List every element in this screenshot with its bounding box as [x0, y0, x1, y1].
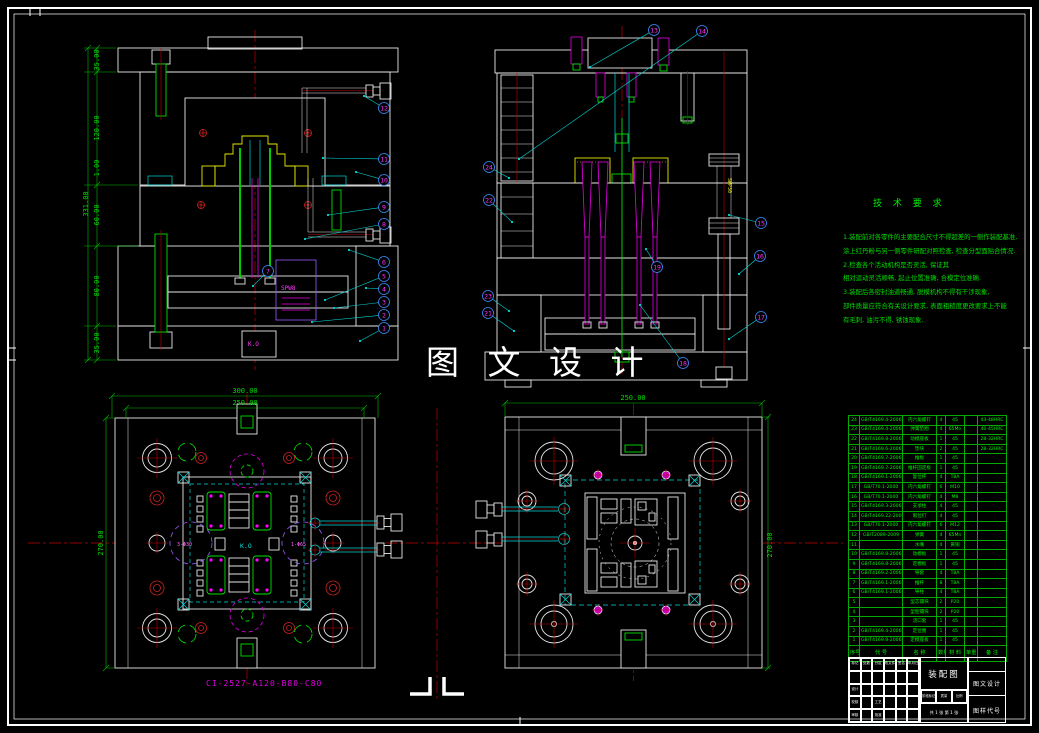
title-block-cell: 设计 [849, 684, 861, 697]
bom-row: 19GB/T4169.7-2006推杆固定板145 [849, 463, 1007, 473]
bom-cell: 4 [937, 588, 946, 598]
balloon-1: 1 [359, 323, 390, 343]
bom-cell: T8A [946, 588, 965, 598]
ko-label: K.O [248, 341, 259, 348]
bom-cell: GB/T4169.4-2006 [860, 425, 903, 435]
title-block-cell: 阶段标记 [921, 690, 936, 703]
bom-cell: 17 [849, 483, 860, 493]
view-plan-core-plate [476, 403, 762, 681]
bom-cell [978, 463, 1007, 473]
bom-cell: 定模座板 [903, 636, 937, 646]
svg-text:9: 9 [382, 203, 386, 211]
title-block-cell [861, 671, 873, 684]
title-block-cell [907, 671, 919, 684]
bom-cell: 动模板 [903, 550, 937, 560]
title-block-cell [896, 684, 908, 697]
bom-cell: 1 [937, 435, 946, 445]
dimension-label: 35.00 [93, 332, 101, 353]
bom-cell [978, 473, 1007, 483]
bom-cell: 导柱 [903, 588, 937, 598]
bom-cell: GB/T70.1-2000 [860, 483, 903, 493]
bom-cell: 垫块 [903, 444, 937, 454]
dia-label-right: 1-Φ65 [291, 542, 306, 548]
bom-cell: 45 [946, 550, 965, 560]
svg-text:13: 13 [650, 26, 658, 34]
code-label: 图样代号 [969, 696, 1005, 724]
title-block-cell: 批准 [872, 709, 884, 722]
bom-cell [965, 483, 978, 493]
bom-cell: 16 [849, 492, 860, 502]
bom-row: 9GB/T4169.8-2006定模板145 [849, 559, 1007, 569]
title-block-cell: 年月日 [907, 658, 919, 671]
bom-cell: 浇口套 [903, 617, 937, 627]
title-block-revision-grid: 标记处数分区更改文件号签名年月日设计校核工艺审核批准 [848, 657, 920, 723]
bom-cell [860, 607, 903, 617]
title-block-cell [884, 671, 896, 684]
dimension-label: 331.00 [82, 191, 90, 216]
tech-requirement-line: 2.检查各个活动机构是否灵活, 保证其 [843, 259, 1039, 273]
bom-cell: 4 [937, 502, 946, 512]
bom-cell: 45 [946, 636, 965, 646]
sheet-count: 共 1 张 第 1 张 [921, 704, 967, 722]
bom-cell [965, 607, 978, 617]
bom-cell: 45 [946, 435, 965, 445]
bom-cell: GB/T4169.1-2006 [860, 473, 903, 483]
title-block-cell [849, 671, 861, 684]
bom-cell: 推杆 [903, 579, 937, 589]
bom-cell [965, 550, 978, 560]
bom-row: 15GB/T4169.3-2006支承柱445 [849, 502, 1007, 512]
bom-cell: 黄铜 [946, 540, 965, 550]
svg-text:5: 5 [382, 272, 386, 280]
bom-cell: 2 [849, 627, 860, 637]
bom-cell: GB/T4169.8-2006 [860, 559, 903, 569]
org-name: 图文设计 [969, 672, 1005, 696]
bom-cell [978, 492, 1007, 502]
svg-text:11: 11 [380, 155, 388, 163]
svg-text:22: 22 [485, 196, 493, 204]
title-block-cell [896, 671, 908, 684]
bom-cell: GB/T4169.7-2006 [860, 463, 903, 473]
title-block-cell: 比例 [952, 690, 967, 703]
svg-text:4: 4 [382, 285, 386, 293]
bom-cell [978, 579, 1007, 589]
dimension-label: 1.00 [93, 160, 101, 177]
title-block-cell [896, 696, 908, 709]
ko-center-label: K.O [240, 542, 252, 550]
bom-cell: M12 [946, 521, 965, 531]
bom-cell [965, 579, 978, 589]
title-block-cell [861, 684, 873, 697]
bom-cell: 45 [946, 627, 965, 637]
title-block-cell: 处数 [861, 658, 873, 671]
dimension-label: 120.00 [93, 115, 101, 140]
title-block-cell [861, 696, 873, 709]
view-section-moving-half: SWP30 [485, 26, 747, 387]
dimension-label: 60.00 [93, 204, 101, 225]
bom-cell: 4 [937, 492, 946, 502]
dimension-label: 250.00 [232, 399, 257, 407]
bom-row: 8GB/T4169.2-2006导套4T8A [849, 569, 1007, 579]
title-block-cell [884, 696, 896, 709]
bom-cell: GB/T4169.7-2006 [860, 454, 903, 464]
title-block-cell: 更改文件号 [884, 658, 896, 671]
return-pin-spring: SWP30 [709, 52, 739, 379]
bom-cell: GB/T4169.4-2006 [860, 627, 903, 637]
bom-cell: 4 [937, 511, 946, 521]
bom-cell: GB/T70.1-2000 [860, 492, 903, 502]
bom-cell [965, 588, 978, 598]
title-block-cell [861, 709, 873, 722]
bom-cell: 支承柱 [903, 502, 937, 512]
bom-cell: 45 [946, 454, 965, 464]
svg-text:1: 1 [382, 324, 386, 332]
bom-cell [978, 588, 1007, 598]
bom-cell: 6 [937, 483, 946, 493]
bom-cell [978, 483, 1007, 493]
bom-row: 2GB/T4169.4-2006定位圈145 [849, 627, 1007, 637]
bom-cell: 45 [946, 444, 965, 454]
bom-table: 24GB/T4169.4-2006内六角螺钉44543-48HRC23GB/T4… [848, 415, 1007, 662]
bom-cell: 65Mn [946, 425, 965, 435]
bom-cell [978, 454, 1007, 464]
bom-cell: 28-32HRC [978, 435, 1007, 445]
svg-text:24: 24 [485, 163, 493, 171]
svg-text:6: 6 [382, 258, 386, 266]
bom-cell [965, 598, 978, 608]
svg-text:7: 7 [266, 267, 270, 275]
bom-cell: 4 [937, 540, 946, 550]
bom-row: 12GB/T2089-2009弹簧465Mn [849, 531, 1007, 541]
dimension-label: 270.00 [97, 530, 105, 555]
title-block-row: 设计 [849, 684, 919, 697]
bom-cell [965, 502, 978, 512]
bom-cell: 24 [849, 416, 860, 426]
bom-cell [978, 607, 1007, 617]
bom-cell: 40-45HRC [978, 425, 1007, 435]
svg-text:19: 19 [653, 263, 661, 271]
view-section-fixed-half: SPW8 K.O [118, 30, 398, 370]
bom-row: 22GB/T4169.8-2006动模座板14528-32HRC [849, 435, 1007, 445]
technical-requirements: 技 术 要 求 1.装配前对各零件的主要配合尺寸不得超差的一侧作装配基准,涂上红… [843, 196, 1039, 328]
bom-cell: 内六角螺钉 [903, 492, 937, 502]
bom-cell: 1 [937, 454, 946, 464]
bom-cell: 推杆固定板 [903, 463, 937, 473]
bom-cell: 20 [849, 454, 860, 464]
bom-cell: 19 [849, 463, 860, 473]
bom-cell: 6 [849, 588, 860, 598]
bom-cell [978, 502, 1007, 512]
bom-cell [965, 435, 978, 445]
title-block-cell [872, 684, 884, 697]
bom-cell: GB/T4169.8-2006 [860, 636, 903, 646]
bom-row: 24GB/T4169.4-2006内六角螺钉44543-48HRC [849, 416, 1007, 426]
bom-cell: 8 [937, 579, 946, 589]
bom-cell: 动模座板 [903, 435, 937, 445]
bom-cell: 8 [849, 569, 860, 579]
svg-text:18: 18 [679, 359, 687, 367]
bom-cell: 1 [937, 636, 946, 646]
bom-cell: 限位钉 [903, 511, 937, 521]
bom-cell: 45 [946, 559, 965, 569]
bom-cell: 4 [937, 531, 946, 541]
bom-cell [965, 627, 978, 637]
bom-cell: 内六角螺钉 [903, 521, 937, 531]
bom-cell: 弹簧 [903, 531, 937, 541]
svg-text:17: 17 [757, 313, 765, 321]
bom-cell [965, 416, 978, 426]
bom-cell: 28-32HRC [978, 444, 1007, 454]
bom-cell: 43-48HRC [978, 416, 1007, 426]
bom-cell: P20 [946, 607, 965, 617]
bom-cell: 5 [849, 598, 860, 608]
svg-text:15: 15 [757, 219, 765, 227]
title-block-blank-cell [969, 658, 1005, 672]
tech-requirement-line: 涂上红丹粉与另一侧零件研配对照检查, 检查分型面贴合情况. [843, 245, 1039, 259]
bom-row: 3浇口套145 [849, 617, 1007, 627]
balloon-10: 10 [355, 171, 390, 186]
bom-cell: T8A [946, 473, 965, 483]
dimension-label: 270.00 [766, 532, 774, 557]
bom-cell: 2 [937, 598, 946, 608]
bom-cell: 45 [946, 463, 965, 473]
dimension-label: 250.00 [620, 394, 645, 402]
title-block-cell [884, 709, 896, 722]
bom-cell: 14 [849, 511, 860, 521]
bom-row: 20GB/T4169.7-2006推板145 [849, 454, 1007, 464]
bom-cell: 22 [849, 435, 860, 445]
bom-cell: 4 [937, 416, 946, 426]
bom-cell: 4 [849, 607, 860, 617]
bom-cell [978, 550, 1007, 560]
bom-cell: 3 [849, 617, 860, 627]
balloon-12: 12 [363, 95, 390, 114]
bom-row: 5型芯镶块2P20 [849, 598, 1007, 608]
bom-cell: GB/T4169.2-2006 [860, 569, 903, 579]
bom-row: 13GB/T70.1-2000内六角螺钉6M12 [849, 521, 1007, 531]
bom-cell: T8A [946, 569, 965, 579]
title-block-cell [907, 684, 919, 697]
balloon-4: 4 [365, 284, 390, 295]
balloon-11: 11 [322, 154, 390, 165]
title-block-cell: 审核 [849, 709, 861, 722]
bom-cell [965, 521, 978, 531]
balloon-3: 3 [333, 297, 390, 310]
bom-cell: GB/T4169.4-2006 [860, 416, 903, 426]
bom-cell: 内六角螺钉 [903, 416, 937, 426]
svg-text:16: 16 [756, 252, 764, 260]
bom-cell [965, 444, 978, 454]
bom-cell: GB/T4169.3-2006 [860, 502, 903, 512]
bom-row: 23GB/T4169.4-2006弹簧垫圈465Mn40-45HRC [849, 425, 1007, 435]
title-block-row [849, 671, 919, 684]
bom-cell: GB/T4169.6-2006 [860, 444, 903, 454]
title-block-cell: 标记 [849, 658, 861, 671]
dimension-label: 300.00 [232, 387, 257, 395]
bom-cell [965, 531, 978, 541]
bom-cell: 内六角螺钉 [903, 483, 937, 493]
title-block-cell [872, 671, 884, 684]
balloon-2: 2 [311, 310, 390, 324]
bom-cell: 7 [849, 579, 860, 589]
bom-cell: 6 [937, 521, 946, 531]
bom-cell [965, 617, 978, 627]
balloon-16: 16 [738, 251, 766, 276]
bom-row: 11水嘴4黄铜 [849, 540, 1007, 550]
bom-cell: 1 [849, 636, 860, 646]
svg-text:23: 23 [484, 292, 492, 300]
bom-cell: 10 [849, 550, 860, 560]
dia-label-left: 3-Φ30 [177, 542, 192, 548]
cad-drawing-sheet: SPW8 K.O [0, 0, 1039, 733]
bom-cell [965, 463, 978, 473]
bom-cell: 水嘴 [903, 540, 937, 550]
bom-cell: M10 [946, 483, 965, 493]
bom-row: 21GB/T4169.6-2006垫块24528-32HRC [849, 444, 1007, 454]
bom-cell: 复位杆 [903, 473, 937, 483]
bom-cell: 9 [849, 559, 860, 569]
bom-cell [965, 540, 978, 550]
bom-cell: 1 [937, 463, 946, 473]
svg-text:14: 14 [698, 27, 706, 35]
bom-cell: 型芯镶块 [903, 598, 937, 608]
tech-requirements-body: 1.装配前对各零件的主要配合尺寸不得超差的一侧作装配基准,涂上红丹粉与另一侧零件… [843, 231, 1039, 328]
bom-cell [978, 511, 1007, 521]
bom-cell: GB/T4169.1-2006 [860, 579, 903, 589]
svg-text:8: 8 [382, 220, 386, 228]
bom-cell: GB/T4169.1-2006 [860, 588, 903, 598]
title-block-cell: 签名 [896, 658, 908, 671]
bom-cell [860, 598, 903, 608]
bom-cell [965, 636, 978, 646]
bom-cell: 13 [849, 521, 860, 531]
bom-cell: 2 [937, 607, 946, 617]
bom-cell: 定模板 [903, 559, 937, 569]
title-block-cell: 工艺 [872, 696, 884, 709]
bom-cell [965, 559, 978, 569]
bom-cell: 4 [937, 473, 946, 483]
bom-cell [978, 617, 1007, 627]
bom-cell: GB/T4169.8-2006 [860, 550, 903, 560]
title-block-cell [907, 696, 919, 709]
balloon-6: 6 [348, 249, 390, 268]
title-block-cell: 分区 [872, 658, 884, 671]
title-block-right: 图文设计 图样代号 [968, 657, 1006, 723]
bom-cell: GB/T70.1-2000 [860, 521, 903, 531]
title-block-row: 校核工艺 [849, 696, 919, 709]
title-block-cell: 质量 [936, 690, 951, 703]
bom-cell [978, 521, 1007, 531]
bom-row: 14GB/T4169.22-2006限位钉445 [849, 511, 1007, 521]
drawing-code: CI-2527-A120-B80-C80 [206, 679, 322, 688]
balloon-21: 21 [483, 308, 516, 333]
svg-text:21: 21 [484, 309, 492, 317]
bom-row: 10GB/T4169.8-2006动模板145 [849, 550, 1007, 560]
bom-cell [860, 540, 903, 550]
bom-cell [965, 569, 978, 579]
bom-cell: 弹簧垫圈 [903, 425, 937, 435]
bom-cell: 15 [849, 502, 860, 512]
bom-cell [965, 425, 978, 435]
bom-cell: 21 [849, 444, 860, 454]
bom-row: 18GB/T4169.1-2006复位杆4T8A [849, 473, 1007, 483]
bom-cell: 1 [937, 617, 946, 627]
drawing-name: 装配图 [921, 658, 967, 690]
bom-cell [965, 492, 978, 502]
title-block-row: 审核批准 [849, 709, 919, 722]
bom-cell: GB/T4169.22-2006 [860, 511, 903, 521]
bom-cell [978, 627, 1007, 637]
tech-requirement-line: 相对运动灵活顺畅, 起止位置准确, 合模定位准确. [843, 272, 1039, 286]
tech-requirements-title: 技 术 要 求 [873, 196, 1039, 209]
tech-requirement-line: 3.装配后各密封油道畅通, 脱模机构不得有干涉现象, [843, 286, 1039, 300]
bom-cell [978, 531, 1007, 541]
bom-cell [978, 559, 1007, 569]
bom-row: 1GB/T4169.8-2006定模座板145 [849, 636, 1007, 646]
svg-text:12: 12 [380, 104, 388, 112]
bom-cell: 1 [937, 627, 946, 637]
bom-cell: T8A [946, 579, 965, 589]
bom-cell: 型腔镶块 [903, 607, 937, 617]
bom-cell: 1 [937, 559, 946, 569]
bom-cell [978, 598, 1007, 608]
bom-cell: 4 [937, 569, 946, 579]
spring-size-label: SWP30 [726, 178, 732, 193]
bom-cell: 45 [946, 511, 965, 521]
dimension-label: 80.00 [93, 275, 101, 296]
bom-cell: GB/T4169.8-2006 [860, 435, 903, 445]
bom-cell: 23 [849, 425, 860, 435]
bom-cell: 2 [937, 444, 946, 454]
dimension-label: 35.00 [93, 49, 101, 70]
title-block-cell [884, 684, 896, 697]
bom-cell [965, 473, 978, 483]
bom-row: 17GB/T70.1-2000内六角螺钉6M10 [849, 483, 1007, 493]
title-block-middle: 装配图 阶段标记质量比例 共 1 张 第 1 张 [920, 657, 968, 723]
bom-cell [860, 617, 903, 627]
bom-cell: 推板 [903, 454, 937, 464]
bom-cell [978, 569, 1007, 579]
bom-row: 4型腔镶块2P20 [849, 607, 1007, 617]
bom-cell: 12 [849, 531, 860, 541]
bom-cell: 45 [946, 416, 965, 426]
bom-cell [965, 511, 978, 521]
bom-cell: 18 [849, 473, 860, 483]
tech-requirement-line: 1.装配前对各零件的主要配合尺寸不得超差的一侧作装配基准, [843, 231, 1039, 245]
bom-cell: 65Mn [946, 531, 965, 541]
bom-cell: 45 [946, 502, 965, 512]
bom-cell: M8 [946, 492, 965, 502]
spring-label: SPW8 [281, 285, 296, 292]
title-block: 标记处数分区更改文件号签名年月日设计校核工艺审核批准 装配图 阶段标记质量比例 … [848, 657, 1006, 723]
view-plan-cavity-plate: K.O 3-Φ30 1-Φ65 [115, 394, 402, 686]
tech-requirement-line: 部件质量应符合有关设计要求, 表面粗糙度更改要求上不能 [843, 300, 1039, 314]
bom-cell: 定位圈 [903, 627, 937, 637]
bom-cell: P20 [946, 598, 965, 608]
bom-row: 16GB/T70.1-2000内六角螺钉4M8 [849, 492, 1007, 502]
bom-row: 7GB/T4169.1-2006推杆8T8A [849, 579, 1007, 589]
bom-cell [978, 540, 1007, 550]
svg-text:10: 10 [380, 176, 388, 184]
title-block-cell [907, 709, 919, 722]
bom-row: 6GB/T4169.1-2006导柱4T8A [849, 588, 1007, 598]
svg-text:2: 2 [382, 311, 386, 319]
svg-text:3: 3 [382, 298, 386, 306]
bom-cell [978, 636, 1007, 646]
bom-cell: GB/T2089-2009 [860, 531, 903, 541]
bom-cell: 45 [946, 617, 965, 627]
bom-cell: 4 [937, 425, 946, 435]
